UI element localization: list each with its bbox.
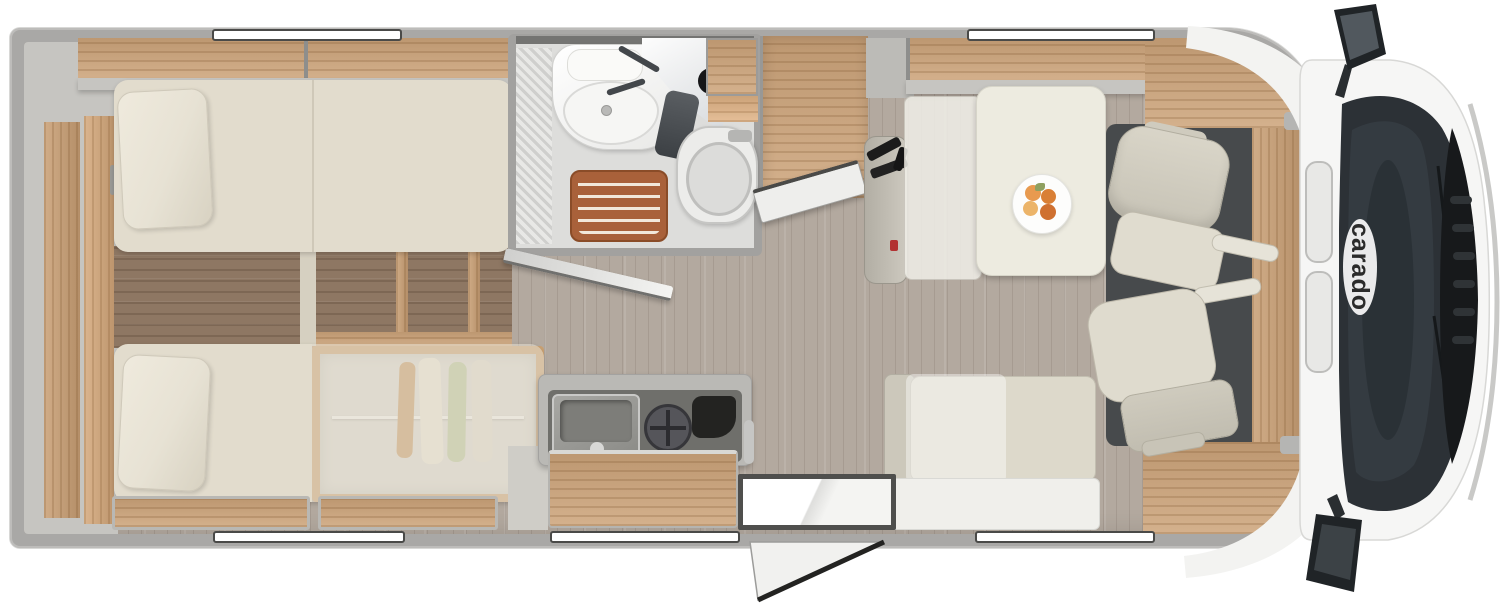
belted-bench-seat bbox=[904, 96, 982, 280]
twin-bed-top-pillow bbox=[116, 88, 213, 231]
shower-mat-slats bbox=[578, 178, 660, 234]
toilet bbox=[676, 126, 758, 224]
kitchen-sink-bowl bbox=[560, 400, 632, 442]
fruit-2 bbox=[1041, 189, 1056, 204]
bed-step-divider-2 bbox=[468, 250, 480, 342]
toilet-seat-ring bbox=[686, 142, 752, 216]
headboard-shelf-outer bbox=[44, 122, 80, 518]
underbed-drawer-2 bbox=[318, 496, 498, 530]
seatbelt-release-red bbox=[890, 240, 898, 251]
fruit-3 bbox=[1023, 201, 1038, 216]
rear-bench-base bbox=[888, 478, 1100, 530]
underbed-drawer-1 bbox=[112, 496, 310, 530]
kitchen-sink bbox=[552, 394, 640, 458]
entry-step-well bbox=[738, 474, 896, 530]
twin-bed-bottom bbox=[114, 344, 544, 502]
towel-rail bbox=[744, 420, 754, 464]
window-bottom-bedroom bbox=[213, 531, 405, 543]
entry-door-open bbox=[742, 536, 902, 603]
rear-bench-overlay bbox=[906, 374, 1006, 484]
sunroof-panel-2 bbox=[1306, 272, 1332, 372]
toilet-side-shelf bbox=[708, 96, 758, 122]
washbasin-drain bbox=[601, 105, 612, 116]
sunroof-panel-1 bbox=[1306, 162, 1332, 262]
bed-step-divider-1 bbox=[396, 250, 408, 342]
bed-foot-panel bbox=[300, 250, 316, 346]
kitchen-drawer-front bbox=[548, 450, 738, 528]
fruit-leaf bbox=[1035, 183, 1045, 191]
window-top-bedroom bbox=[212, 29, 402, 41]
brand-logo-text: carado bbox=[1346, 223, 1374, 311]
hob-glass-cover bbox=[692, 396, 736, 438]
shower-glass-door bbox=[516, 48, 552, 244]
burner-grate-v bbox=[666, 410, 670, 446]
motorhome-floorplan: carado bbox=[0, 0, 1500, 603]
twin-bed-top-seam bbox=[312, 80, 314, 252]
overhead-locker-divider bbox=[304, 38, 308, 80]
fruit-plate bbox=[1012, 174, 1072, 234]
fruit-4 bbox=[1040, 204, 1056, 220]
window-top-dinette bbox=[967, 29, 1155, 41]
window-bottom-dinette bbox=[975, 531, 1155, 543]
twin-bed-bottom-pillow bbox=[117, 354, 212, 492]
overhead-locker-bedroom bbox=[78, 38, 512, 80]
window-bottom-kitchen bbox=[550, 531, 740, 543]
toilet-cistern-shelf bbox=[706, 38, 758, 96]
cab-front: carado bbox=[1160, 0, 1500, 603]
shower-wood-mat bbox=[570, 170, 668, 242]
gas-burner bbox=[644, 404, 692, 452]
toilet-lid-hinge bbox=[728, 130, 752, 142]
twin-bed-top bbox=[114, 80, 512, 252]
